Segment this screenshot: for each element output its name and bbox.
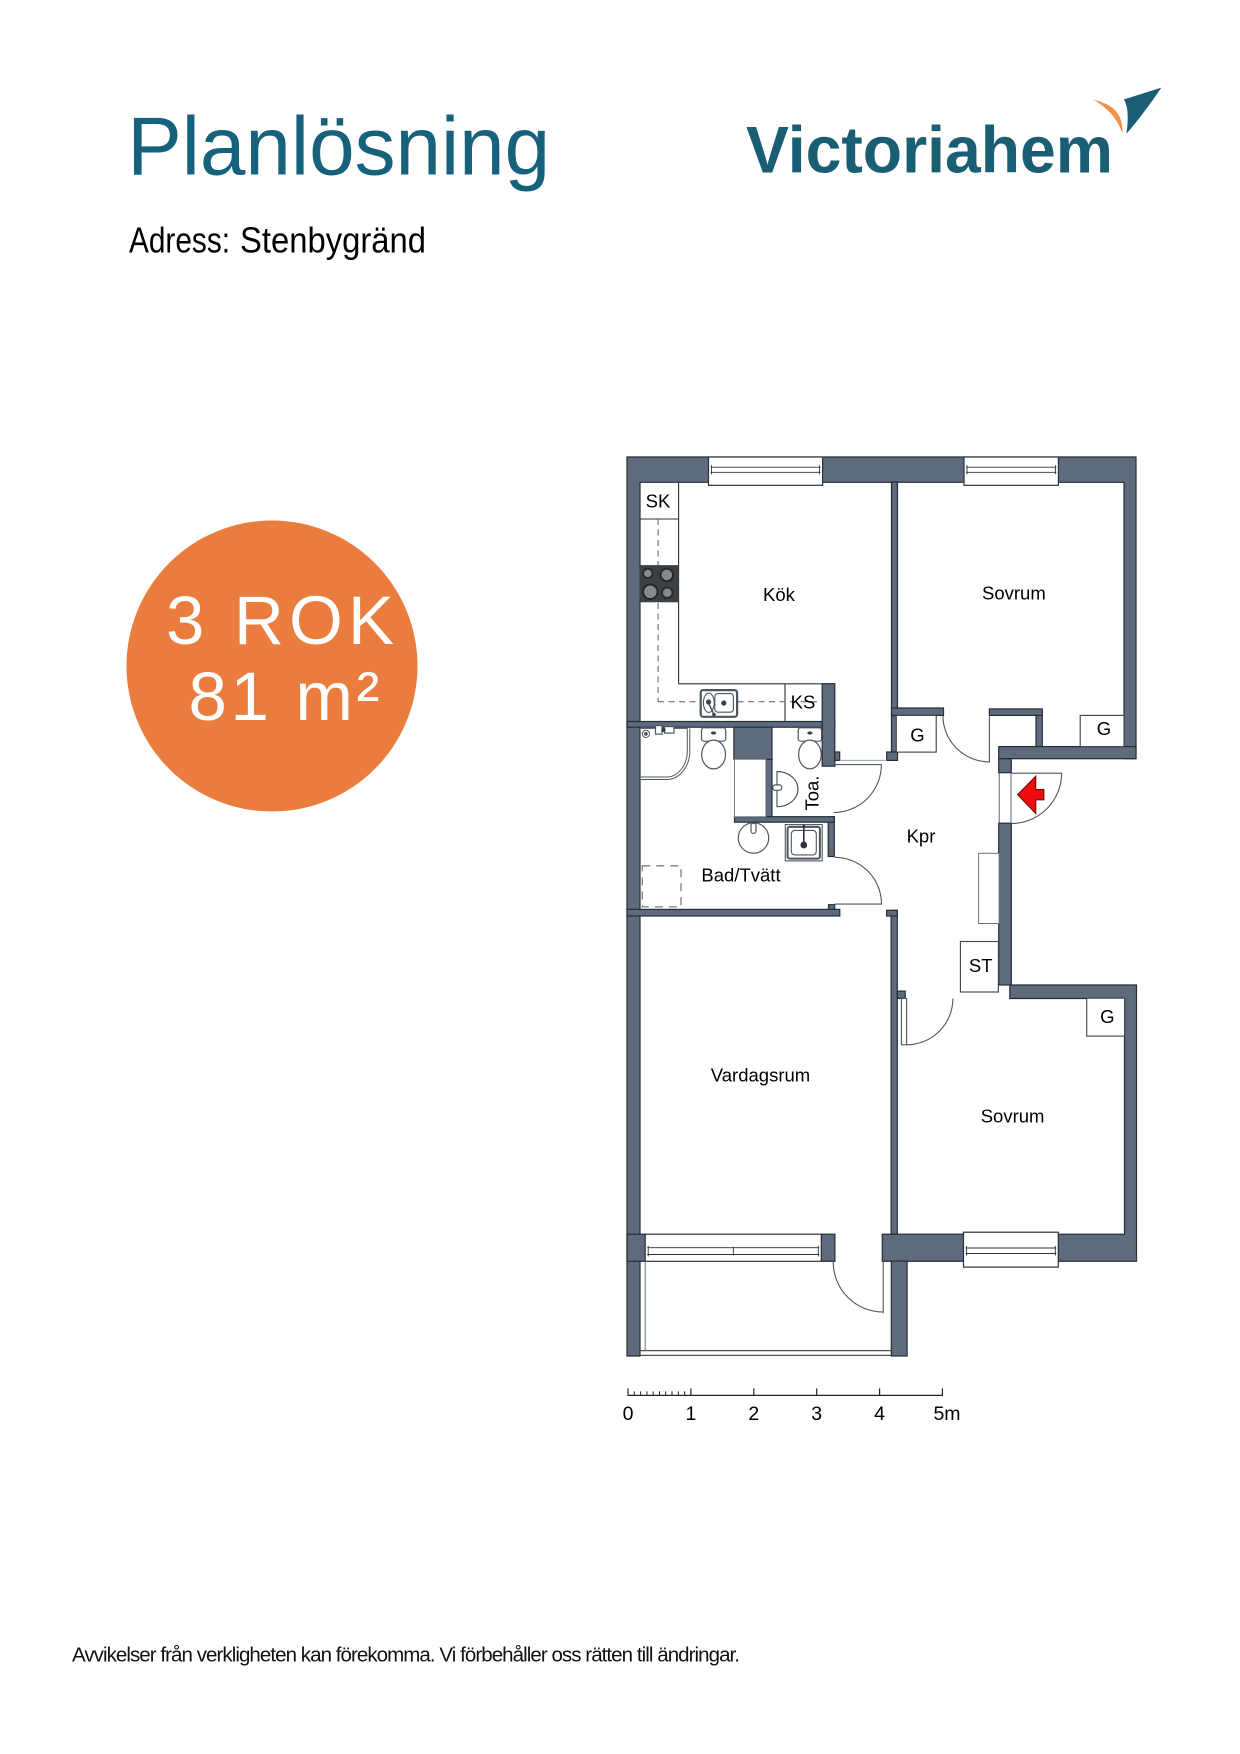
- svg-text:ST: ST: [969, 955, 993, 976]
- svg-text:SK: SK: [646, 491, 671, 512]
- svg-text:2: 2: [748, 1403, 759, 1425]
- svg-text:Kpr: Kpr: [907, 826, 936, 847]
- svg-text:Toa.: Toa.: [802, 776, 823, 811]
- svg-text:G: G: [1097, 718, 1111, 739]
- svg-text:Sovrum: Sovrum: [982, 582, 1046, 603]
- svg-text:5m: 5m: [933, 1403, 960, 1425]
- svg-text:G: G: [910, 725, 924, 746]
- svg-text:Bad/Tvätt: Bad/Tvätt: [701, 865, 780, 886]
- svg-text:1: 1: [685, 1403, 696, 1425]
- svg-text:Avvikelser från verkligheten k: Avvikelser från verkligheten kan förekom…: [72, 1644, 740, 1667]
- svg-text:Kök: Kök: [763, 584, 796, 605]
- svg-text:Victoriahem: Victoriahem: [746, 113, 1113, 187]
- svg-text:Planlösning: Planlösning: [127, 101, 550, 193]
- svg-text:3: 3: [811, 1403, 822, 1425]
- svg-text:81 m²: 81 m²: [189, 658, 380, 735]
- svg-text:4: 4: [874, 1403, 885, 1425]
- svg-text:Vardagsrum: Vardagsrum: [711, 1065, 810, 1086]
- svg-text:0: 0: [623, 1403, 634, 1425]
- svg-text:Adress:Stenbygränd: Adress:Stenbygränd: [129, 219, 426, 260]
- svg-text:3 ROK: 3 ROK: [166, 582, 394, 659]
- svg-text:Sovrum: Sovrum: [981, 1106, 1045, 1127]
- svg-text:KS: KS: [791, 692, 816, 713]
- svg-text:G: G: [1100, 1006, 1114, 1027]
